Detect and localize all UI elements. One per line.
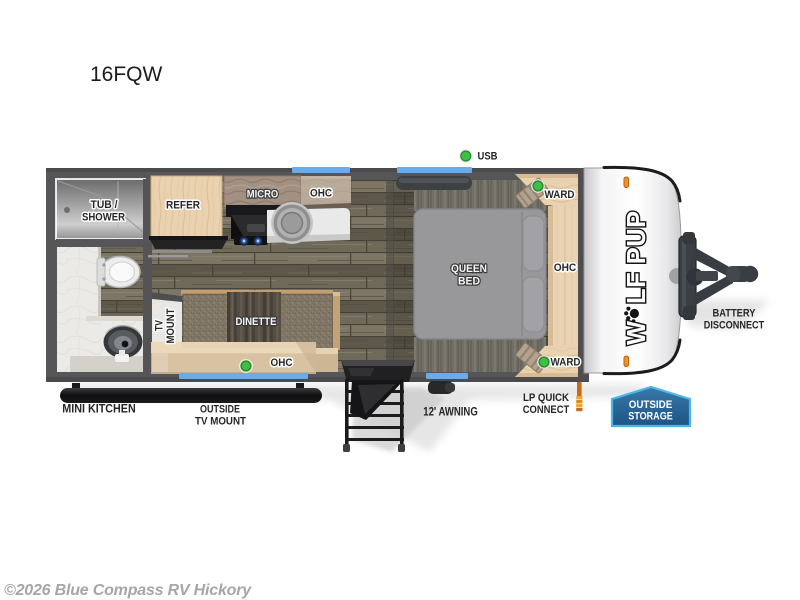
svg-text:TUB /: TUB / <box>91 199 118 211</box>
svg-text:REFER: REFER <box>166 200 200 212</box>
svg-text:USB: USB <box>478 151 498 163</box>
svg-text:LF PUP: LF PUP <box>623 210 651 304</box>
svg-text:LP QUICK: LP QUICK <box>523 392 570 404</box>
svg-text:SHOWER: SHOWER <box>82 212 125 224</box>
svg-text:DISCONNECT: DISCONNECT <box>704 320 765 332</box>
svg-text:QUEEN: QUEEN <box>451 263 487 275</box>
svg-text:TV MOUNT: TV MOUNT <box>195 416 246 428</box>
svg-text:BATTERY: BATTERY <box>713 308 756 320</box>
svg-text:DINETTE: DINETTE <box>236 316 277 328</box>
svg-text:WARD: WARD <box>545 189 575 201</box>
svg-text:16FQW: 16FQW <box>90 63 163 86</box>
svg-text:W: W <box>623 320 651 345</box>
svg-text:CONNECT: CONNECT <box>523 404 570 416</box>
svg-text:OUTSIDE: OUTSIDE <box>200 404 240 416</box>
svg-text:MICRO: MICRO <box>247 189 279 201</box>
svg-text:12' AWNING: 12' AWNING <box>423 405 478 419</box>
svg-text:MINI KITCHEN: MINI KITCHEN <box>62 404 136 416</box>
svg-text:OUTSIDE: OUTSIDE <box>629 399 673 411</box>
svg-text:MOUNT: MOUNT <box>165 308 177 343</box>
svg-text:OHC: OHC <box>310 188 332 200</box>
svg-text:TV: TV <box>154 320 166 331</box>
svg-text:BED: BED <box>458 276 480 288</box>
svg-text:OHC: OHC <box>554 262 577 274</box>
svg-text:STORAGE: STORAGE <box>628 411 673 423</box>
svg-text:OHC: OHC <box>271 357 293 369</box>
svg-text:©2026 Blue Compass RV Hickory: ©2026 Blue Compass RV Hickory <box>4 582 252 599</box>
svg-text:WARD: WARD <box>551 357 581 369</box>
